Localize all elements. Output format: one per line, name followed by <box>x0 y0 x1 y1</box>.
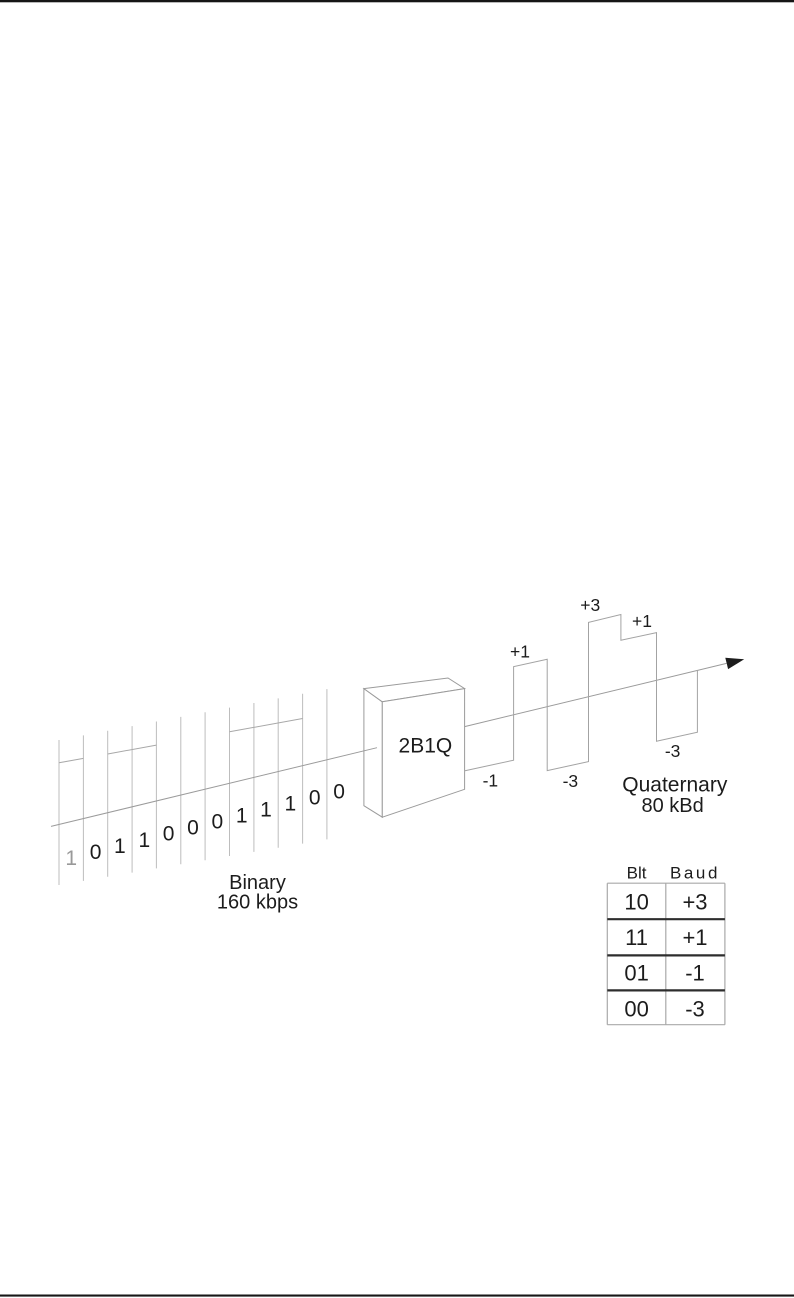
svg-text:-3: -3 <box>563 771 579 791</box>
svg-text:11: 11 <box>625 925 648 950</box>
svg-text:1: 1 <box>260 799 272 822</box>
svg-text:-1: -1 <box>685 961 705 986</box>
svg-text:0: 0 <box>309 786 321 809</box>
svg-text:80 kBd: 80 kBd <box>641 795 703 817</box>
svg-text:1: 1 <box>285 792 297 815</box>
svg-text:Baud: Baud <box>670 863 720 882</box>
svg-text:10: 10 <box>624 889 648 914</box>
svg-text:-1: -1 <box>483 771 499 791</box>
svg-text:+3: +3 <box>682 889 707 914</box>
svg-text:0: 0 <box>163 823 175 846</box>
svg-text:1: 1 <box>236 805 248 828</box>
svg-text:-3: -3 <box>685 996 705 1021</box>
svg-text:2B1Q: 2B1Q <box>399 734 453 757</box>
svg-text:Quaternary: Quaternary <box>622 774 728 797</box>
svg-text:+1: +1 <box>510 641 530 661</box>
svg-text:1: 1 <box>114 835 126 858</box>
svg-text:0: 0 <box>333 780 345 803</box>
svg-text:01: 01 <box>624 961 648 986</box>
svg-text:+1: +1 <box>632 611 652 631</box>
svg-text:0: 0 <box>90 841 102 864</box>
svg-text:+3: +3 <box>580 595 600 615</box>
svg-text:-3: -3 <box>665 741 681 761</box>
svg-text:0: 0 <box>211 811 223 834</box>
svg-text:0: 0 <box>187 817 199 840</box>
svg-text:1: 1 <box>138 829 150 852</box>
svg-text:Blt: Blt <box>627 863 647 882</box>
svg-text:+1: +1 <box>682 925 707 950</box>
svg-text:160 kbps: 160 kbps <box>217 891 298 913</box>
svg-text:1: 1 <box>65 847 77 870</box>
svg-text:00: 00 <box>624 996 648 1021</box>
